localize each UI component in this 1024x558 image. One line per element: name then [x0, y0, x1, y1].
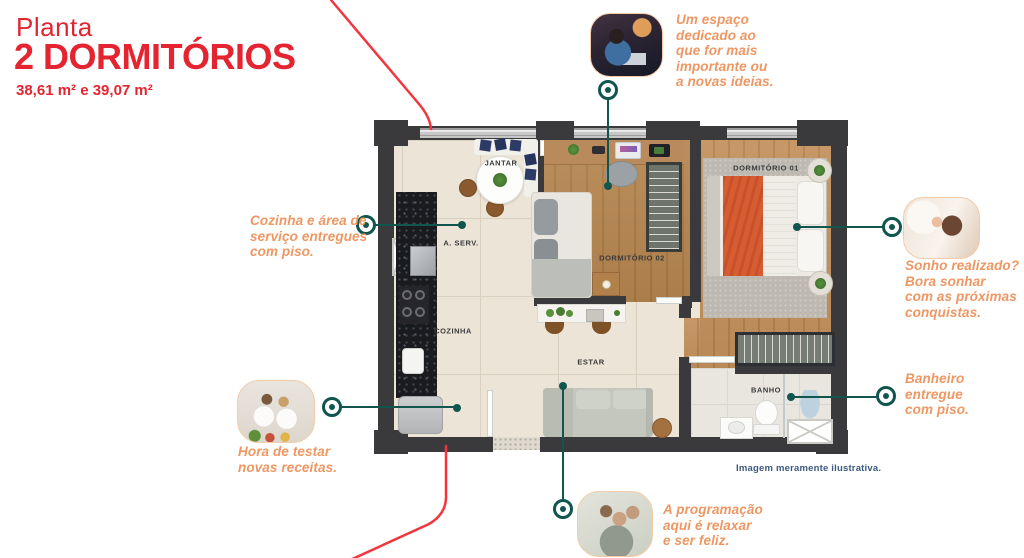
connector-marker-bathroom	[876, 386, 896, 406]
desk-plant	[568, 144, 579, 155]
plan-areas: 38,61 m² e 39,07 m²	[16, 82, 153, 99]
column-top-mid2	[646, 121, 700, 140]
connector-marker-workspace	[598, 80, 618, 100]
column-top-right	[797, 120, 848, 146]
connector-dot-recipes	[453, 404, 461, 412]
toilet-tank	[753, 424, 780, 435]
room-label-cozinha: COZINHA	[434, 327, 472, 336]
navy-pillow	[524, 153, 537, 166]
room-label-jantar: JANTAR	[485, 159, 518, 168]
bedroom2-door-leaf	[656, 297, 682, 304]
connector-line-recipes	[332, 406, 456, 408]
shower-figure	[798, 390, 822, 422]
connector-marker-dream	[882, 217, 902, 237]
desk-gadget	[592, 146, 605, 154]
connector-line-workspace	[607, 100, 609, 184]
wall-left	[378, 132, 394, 444]
bathroom-door-leaf	[689, 356, 735, 363]
connector-line-bathroom	[791, 396, 879, 398]
laptop	[615, 142, 641, 159]
callout-text-workspace: Um espaço dedicado ao que for mais impor…	[676, 12, 774, 90]
toilet-bowl	[755, 400, 778, 426]
callout-text-dream: Sonho realizado? Bora sonhar com as próx…	[905, 258, 1019, 320]
desk-frame	[649, 144, 670, 157]
room-label-estar: ESTAR	[577, 358, 604, 367]
living-console	[537, 304, 626, 323]
bedroom2-bed	[531, 192, 592, 298]
connector-dot-dream	[793, 223, 801, 231]
column-top-mid1	[536, 121, 574, 140]
navy-pillow	[479, 139, 491, 151]
page-title: 2 DORMITÓRIOS	[14, 36, 296, 78]
nightstand	[807, 158, 832, 183]
entry-door-leaf	[487, 390, 493, 437]
fridge	[398, 396, 443, 434]
connector-dot-bathroom	[787, 393, 795, 401]
room-label-banho: BANHO	[751, 386, 781, 395]
connector-line-relax	[562, 388, 564, 501]
callout-text-relax: A programação aqui é relaxar e ser feliz…	[663, 502, 763, 549]
photo-woman-waking-up-in-bed	[903, 197, 980, 259]
planta-2-dormitorios-page: Planta 2 DORMITÓRIOS 38,61 m² e 39,07 m²	[0, 0, 1024, 558]
connector-dot-workspace	[604, 182, 612, 190]
photo-man-working-at-laptop	[590, 13, 663, 77]
dining-chair	[459, 179, 477, 197]
illustrative-image-caption: Imagem meramente ilustrativa.	[736, 463, 881, 474]
window-bedroom2	[574, 128, 646, 138]
table-plant	[493, 173, 507, 187]
living-side-table	[652, 418, 672, 438]
navy-pillow	[509, 139, 521, 151]
bedroom2-wardrobe	[646, 162, 682, 252]
sofa	[543, 388, 653, 437]
callout-text-recipes: Hora de testar novas receitas.	[238, 444, 337, 475]
bathroom-sink	[720, 417, 753, 439]
connector-marker-relax	[553, 499, 573, 519]
navy-pillow	[494, 138, 507, 151]
room-label-dormitorio01: DORMITÓRIO 01	[733, 164, 799, 173]
window-bedroom1	[727, 128, 797, 138]
laundry-tank	[410, 246, 436, 276]
connector-dot-kitchen	[458, 221, 466, 229]
bedroom2-side-table	[592, 272, 620, 296]
column-top-left	[374, 120, 408, 146]
photo-man-relaxing	[577, 491, 653, 557]
connector-line-kitchen	[366, 224, 461, 226]
shower-box	[787, 419, 833, 444]
entry-threshold	[493, 437, 540, 450]
nightstand	[808, 271, 833, 296]
connector-dot-relax	[559, 382, 567, 390]
room-label-aserv: A. SERV.	[443, 239, 478, 248]
kitchen-sink	[402, 348, 424, 374]
navy-pillow	[525, 169, 537, 181]
connector-marker-recipes	[322, 397, 342, 417]
connector-line-dream	[797, 226, 885, 228]
stove	[399, 286, 429, 324]
window-kitchen	[420, 128, 536, 138]
room-label-dormitorio02: DORMITÓRIO 02	[599, 254, 665, 263]
callout-text-kitchen: Cozinha e área de serviço entregues com …	[250, 213, 367, 260]
wall-bedroom2-bedroom1	[690, 140, 701, 302]
callout-text-bathroom: Banheiro entregue com piso.	[905, 371, 969, 418]
photo-couple-cooking	[237, 380, 315, 443]
bedroom1-wardrobe	[735, 332, 835, 366]
shower-glass	[783, 374, 785, 438]
wall-hall-bottom	[679, 357, 691, 440]
